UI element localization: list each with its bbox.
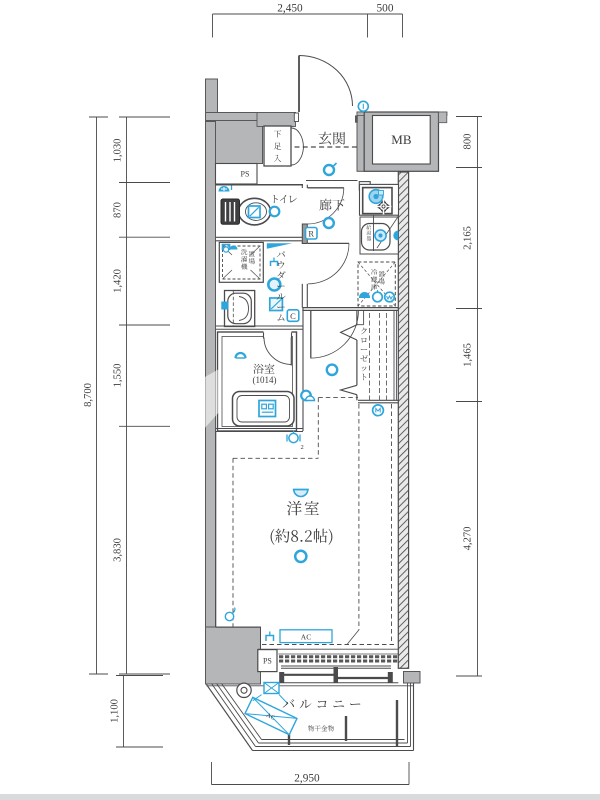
svg-text:PS: PS xyxy=(263,657,272,666)
svg-text:870: 870 xyxy=(113,202,124,218)
svg-text:2,450: 2,450 xyxy=(277,3,303,15)
svg-text:2: 2 xyxy=(301,444,304,451)
svg-text:MB: MB xyxy=(391,132,412,147)
svg-text:2,950: 2,950 xyxy=(294,773,320,785)
svg-text:1,550: 1,550 xyxy=(113,364,124,388)
svg-text:8,700: 8,700 xyxy=(83,383,94,407)
svg-text:C: C xyxy=(290,311,296,321)
svg-text:1,420: 1,420 xyxy=(113,269,124,293)
svg-text:(1014): (1014) xyxy=(253,375,277,385)
svg-text:800: 800 xyxy=(463,134,474,150)
svg-text:PS: PS xyxy=(241,170,250,179)
svg-text:1,100: 1,100 xyxy=(110,699,121,723)
svg-text:1,030: 1,030 xyxy=(113,139,124,163)
svg-text:2,165: 2,165 xyxy=(463,226,474,250)
svg-text:R: R xyxy=(308,229,314,239)
svg-text:500: 500 xyxy=(377,3,394,15)
svg-text:4,270: 4,270 xyxy=(463,527,474,551)
svg-text:3,830: 3,830 xyxy=(113,538,124,562)
svg-text:1,465: 1,465 xyxy=(463,343,474,367)
svg-text:AC: AC xyxy=(301,632,311,641)
